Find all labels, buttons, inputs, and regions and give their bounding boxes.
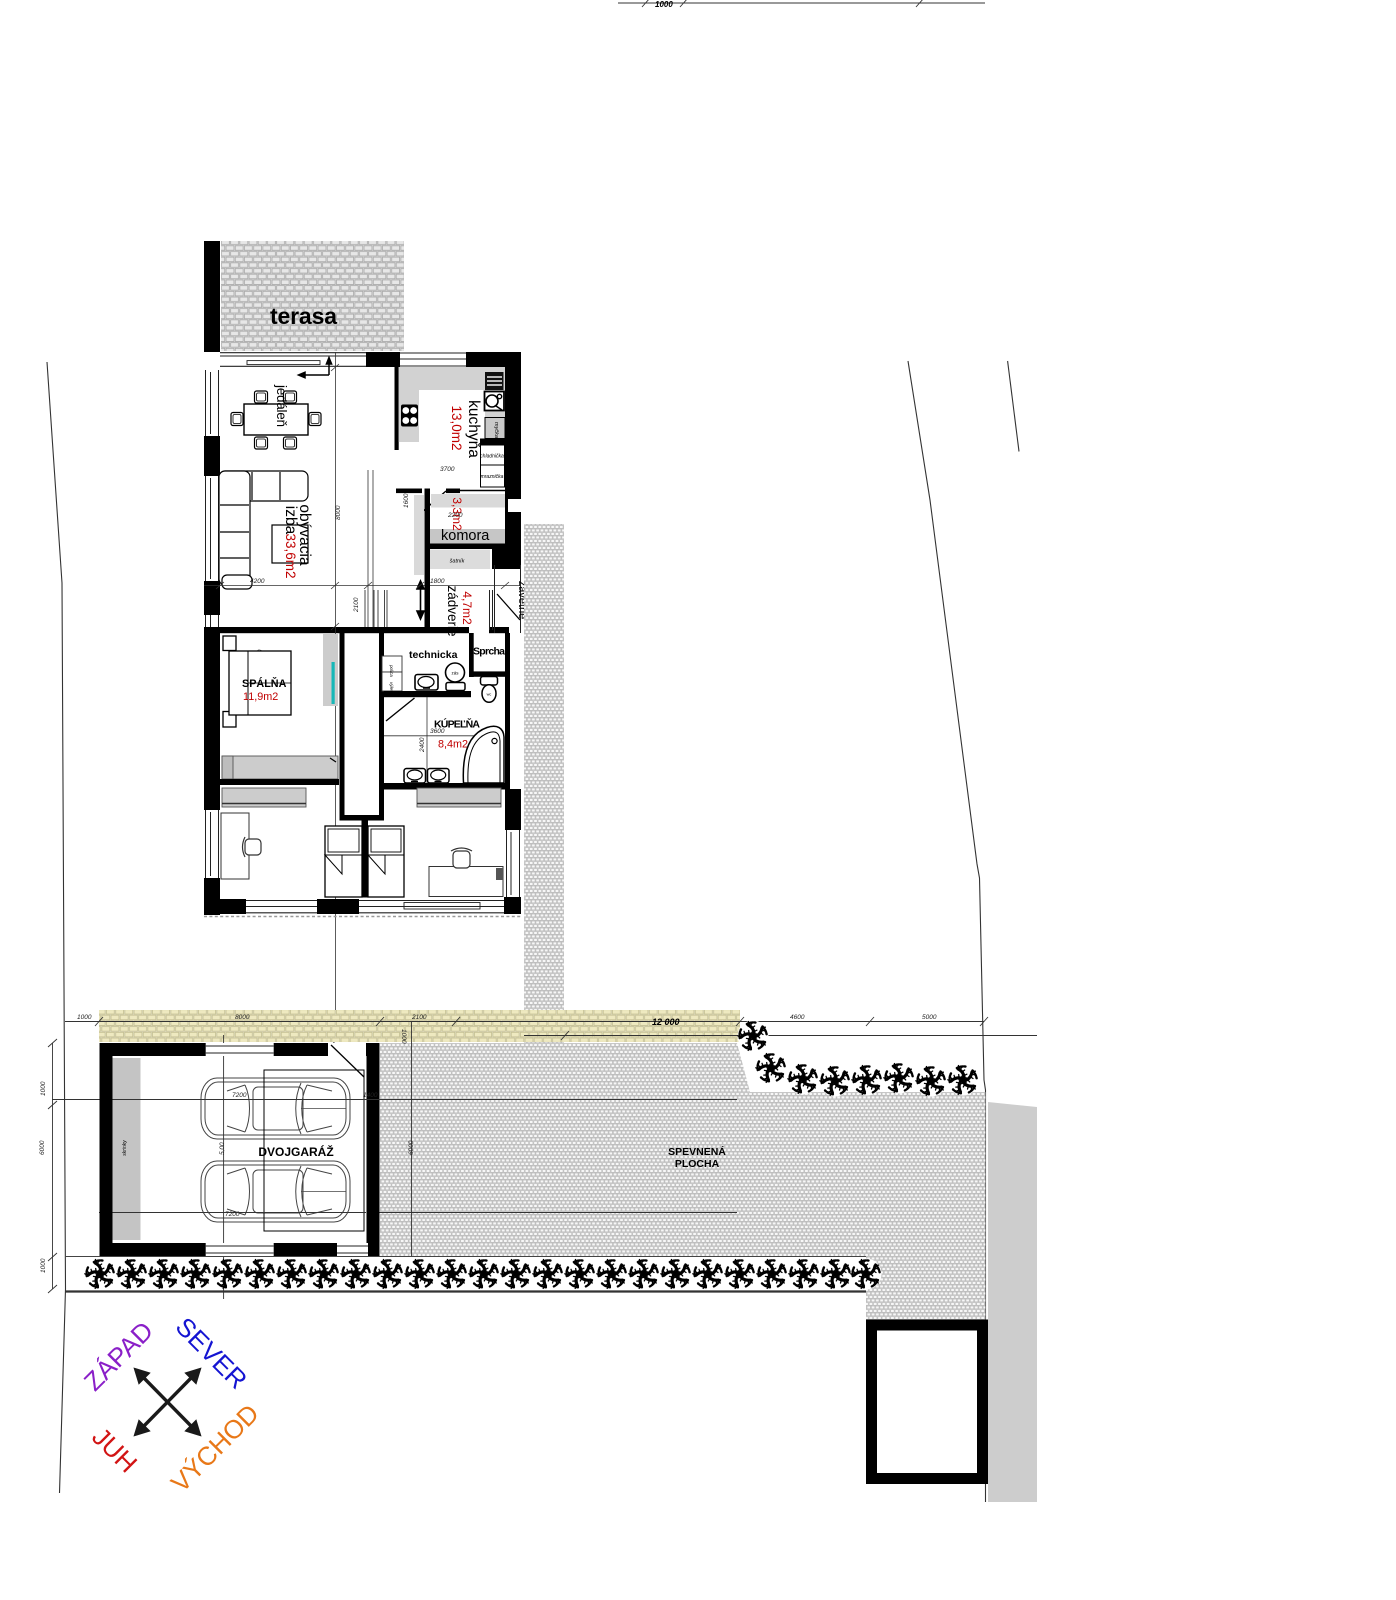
svg-text:jedáleň: jedáleň [274, 384, 289, 427]
svg-text:kuchyňa: kuchyňa [465, 400, 482, 458]
svg-text:2100: 2100 [411, 1014, 427, 1021]
svg-text:8000: 8000 [235, 1014, 250, 1021]
svg-text:7200: 7200 [225, 1211, 240, 1218]
svg-text:11,9m2: 11,9m2 [243, 691, 278, 703]
svg-text:šatník: šatník [450, 559, 465, 565]
svg-text:1600: 1600 [403, 493, 410, 508]
svg-text:technicka: technicka [409, 649, 458, 661]
svg-text:zádverie: zádverie [445, 585, 460, 636]
svg-text:1800: 1800 [430, 578, 445, 585]
svg-text:6000: 6000 [39, 1140, 46, 1155]
svg-text:8,4m2: 8,4m2 [438, 739, 468, 751]
svg-text:DVOJGARÁŽ: DVOJGARÁŽ [258, 1144, 333, 1159]
svg-text:5000: 5000 [922, 1014, 937, 1021]
svg-text:13,0m2: 13,0m2 [449, 405, 464, 450]
svg-text:6000: 6000 [408, 1140, 415, 1155]
svg-text:terasa: terasa [270, 303, 337, 329]
svg-text:8000: 8000 [335, 505, 342, 520]
svg-text:1000: 1000 [40, 1081, 47, 1096]
svg-text:4200: 4200 [250, 578, 265, 585]
svg-text:5,00: 5,00 [219, 1142, 226, 1155]
svg-text:zás: zás [451, 671, 459, 676]
svg-text:mraznička: mraznička [481, 474, 504, 480]
svg-text:1000: 1000 [655, 0, 673, 9]
svg-text:myčka: myčka [493, 422, 499, 438]
svg-text:4600: 4600 [790, 1014, 805, 1021]
svg-text:1000: 1000 [77, 1014, 92, 1021]
svg-text:33,6m2: 33,6m2 [283, 533, 298, 578]
svg-text:1000: 1000 [400, 1029, 407, 1044]
svg-text:2400: 2400 [419, 737, 426, 753]
svg-text:2200: 2200 [447, 512, 463, 519]
svg-text:SPEVNENÁ: SPEVNENÁ [668, 1145, 726, 1158]
svg-text:7200: 7200 [232, 1092, 247, 1099]
svg-text:Sprcha: Sprcha [473, 646, 505, 658]
svg-text:SPÁLŇA: SPÁLŇA [242, 677, 287, 690]
svg-text:12 000: 12 000 [652, 1017, 680, 1027]
svg-text:komora: komora [441, 528, 490, 544]
svg-text:skrinky: skrinky [122, 1140, 128, 1156]
svg-text:izba: izba [282, 506, 299, 535]
svg-text:1400: 1400 [363, 1092, 378, 1099]
svg-text:4,7m2: 4,7m2 [460, 591, 474, 625]
svg-text:1000: 1000 [40, 1258, 47, 1273]
svg-text:2100: 2100 [353, 597, 360, 613]
svg-text:3700: 3700 [440, 466, 455, 473]
svg-text:PLOCHA: PLOCHA [675, 1158, 720, 1170]
svg-text:KÚPEĽŇA: KÚPEĽŇA [434, 718, 480, 731]
svg-text:polica: polica [389, 664, 394, 677]
svg-text:chladnička: chladnička [480, 454, 504, 460]
svg-text:wc: wc [487, 693, 492, 697]
